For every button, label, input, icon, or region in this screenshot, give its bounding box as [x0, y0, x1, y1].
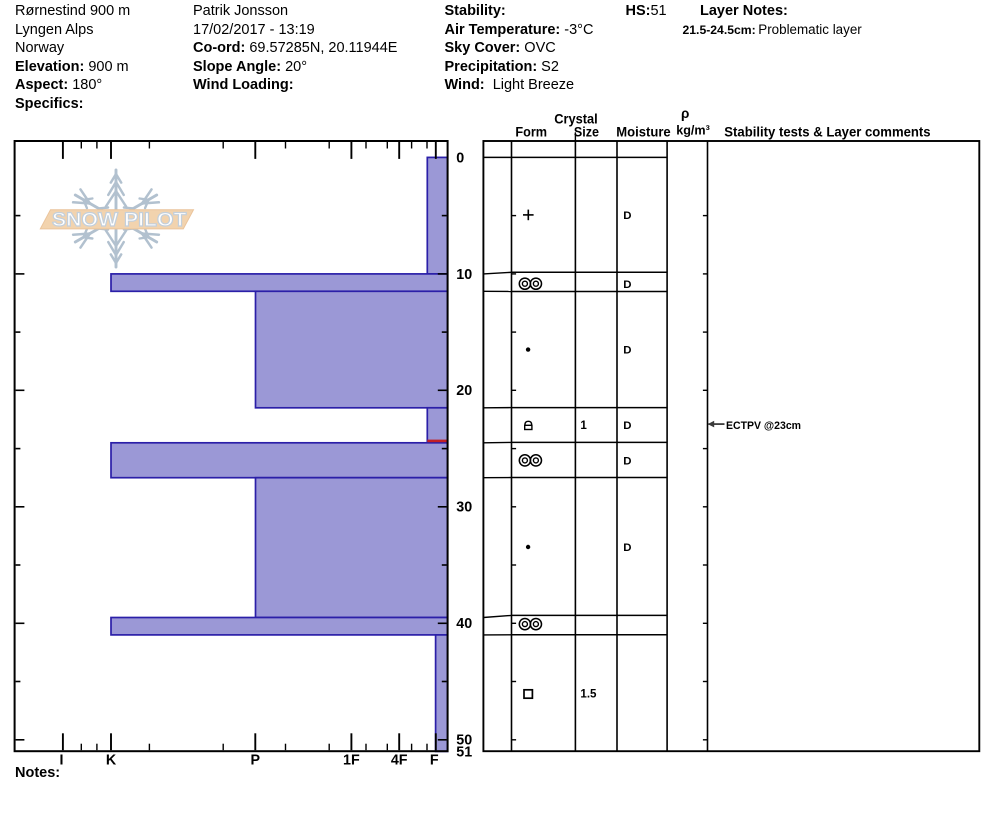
svg-text:F: F — [430, 752, 439, 768]
svg-text:P: P — [251, 752, 261, 768]
svg-text:Form: Form — [515, 125, 547, 140]
svg-text:30: 30 — [456, 500, 472, 516]
svg-text:1: 1 — [580, 419, 587, 432]
svg-text:D: D — [623, 420, 631, 432]
svg-text:K: K — [106, 752, 117, 768]
svg-text:SNOW PILOT: SNOW PILOT — [52, 209, 187, 231]
svg-text:10: 10 — [456, 267, 472, 283]
svg-text:1.5: 1.5 — [580, 688, 597, 701]
svg-text:ECTPV @23cm: ECTPV @23cm — [726, 420, 801, 432]
svg-text:D: D — [623, 542, 631, 554]
svg-text:4F: 4F — [391, 752, 408, 768]
svg-text:D: D — [623, 279, 631, 291]
svg-text:D: D — [623, 456, 631, 468]
svg-text:Stability tests & Layer commen: Stability tests & Layer comments — [724, 125, 930, 140]
svg-text:0: 0 — [456, 150, 464, 166]
svg-text:I: I — [60, 752, 64, 768]
svg-text:D: D — [623, 345, 631, 357]
svg-text:ρ: ρ — [681, 106, 689, 121]
svg-text:40: 40 — [456, 616, 472, 632]
svg-text:Size: Size — [574, 125, 600, 140]
svg-text:1F: 1F — [343, 752, 360, 768]
svg-text:D: D — [623, 210, 631, 222]
svg-text:Moisture: Moisture — [616, 125, 671, 140]
svg-text:20: 20 — [456, 383, 472, 399]
svg-text:kg/m³: kg/m³ — [676, 124, 710, 138]
svg-text:51: 51 — [456, 744, 472, 760]
